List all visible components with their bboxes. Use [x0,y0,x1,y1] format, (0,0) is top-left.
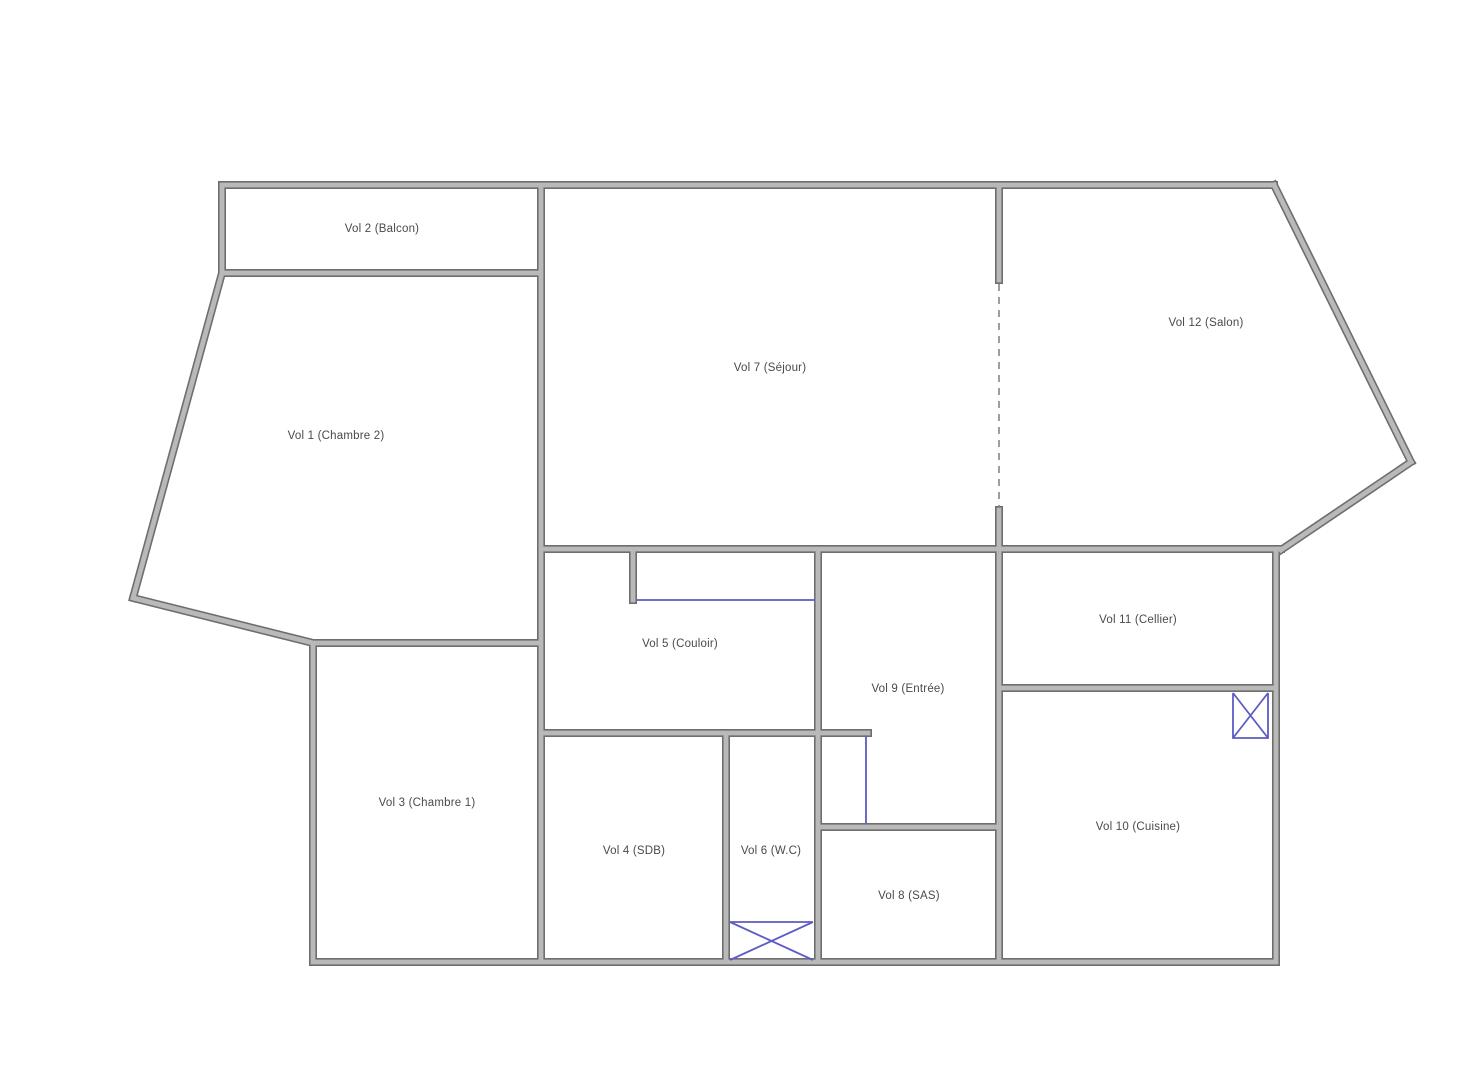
room-label-vol7: Vol 7 (Séjour) [734,362,806,374]
room-label-vol3: Vol 3 (Chambre 1) [379,797,476,809]
wc-fixture-x-box [730,922,813,960]
floor-plan-canvas: Vol 1 (Chambre 2) Vol 2 (Balcon) Vol 3 (… [0,0,1467,1080]
room-label-vol2: Vol 2 (Balcon) [345,223,419,235]
room-label-vol4: Vol 4 (SDB) [603,845,665,857]
room-label-vol8: Vol 8 (SAS) [878,890,940,902]
floor-plan-svg [0,0,1467,1080]
cuisine-fixture-x-box [1233,693,1268,738]
room-label-vol6: Vol 6 (W.C) [741,845,801,857]
room-label-vol11: Vol 11 (Cellier) [1099,614,1177,626]
room-label-vol1: Vol 1 (Chambre 2) [288,430,385,442]
room-label-vol5: Vol 5 (Couloir) [642,638,718,650]
room-label-vol9: Vol 9 (Entrée) [871,683,944,695]
room-label-vol12: Vol 12 (Salon) [1168,317,1243,329]
room-label-vol10: Vol 10 (Cuisine) [1096,821,1180,833]
